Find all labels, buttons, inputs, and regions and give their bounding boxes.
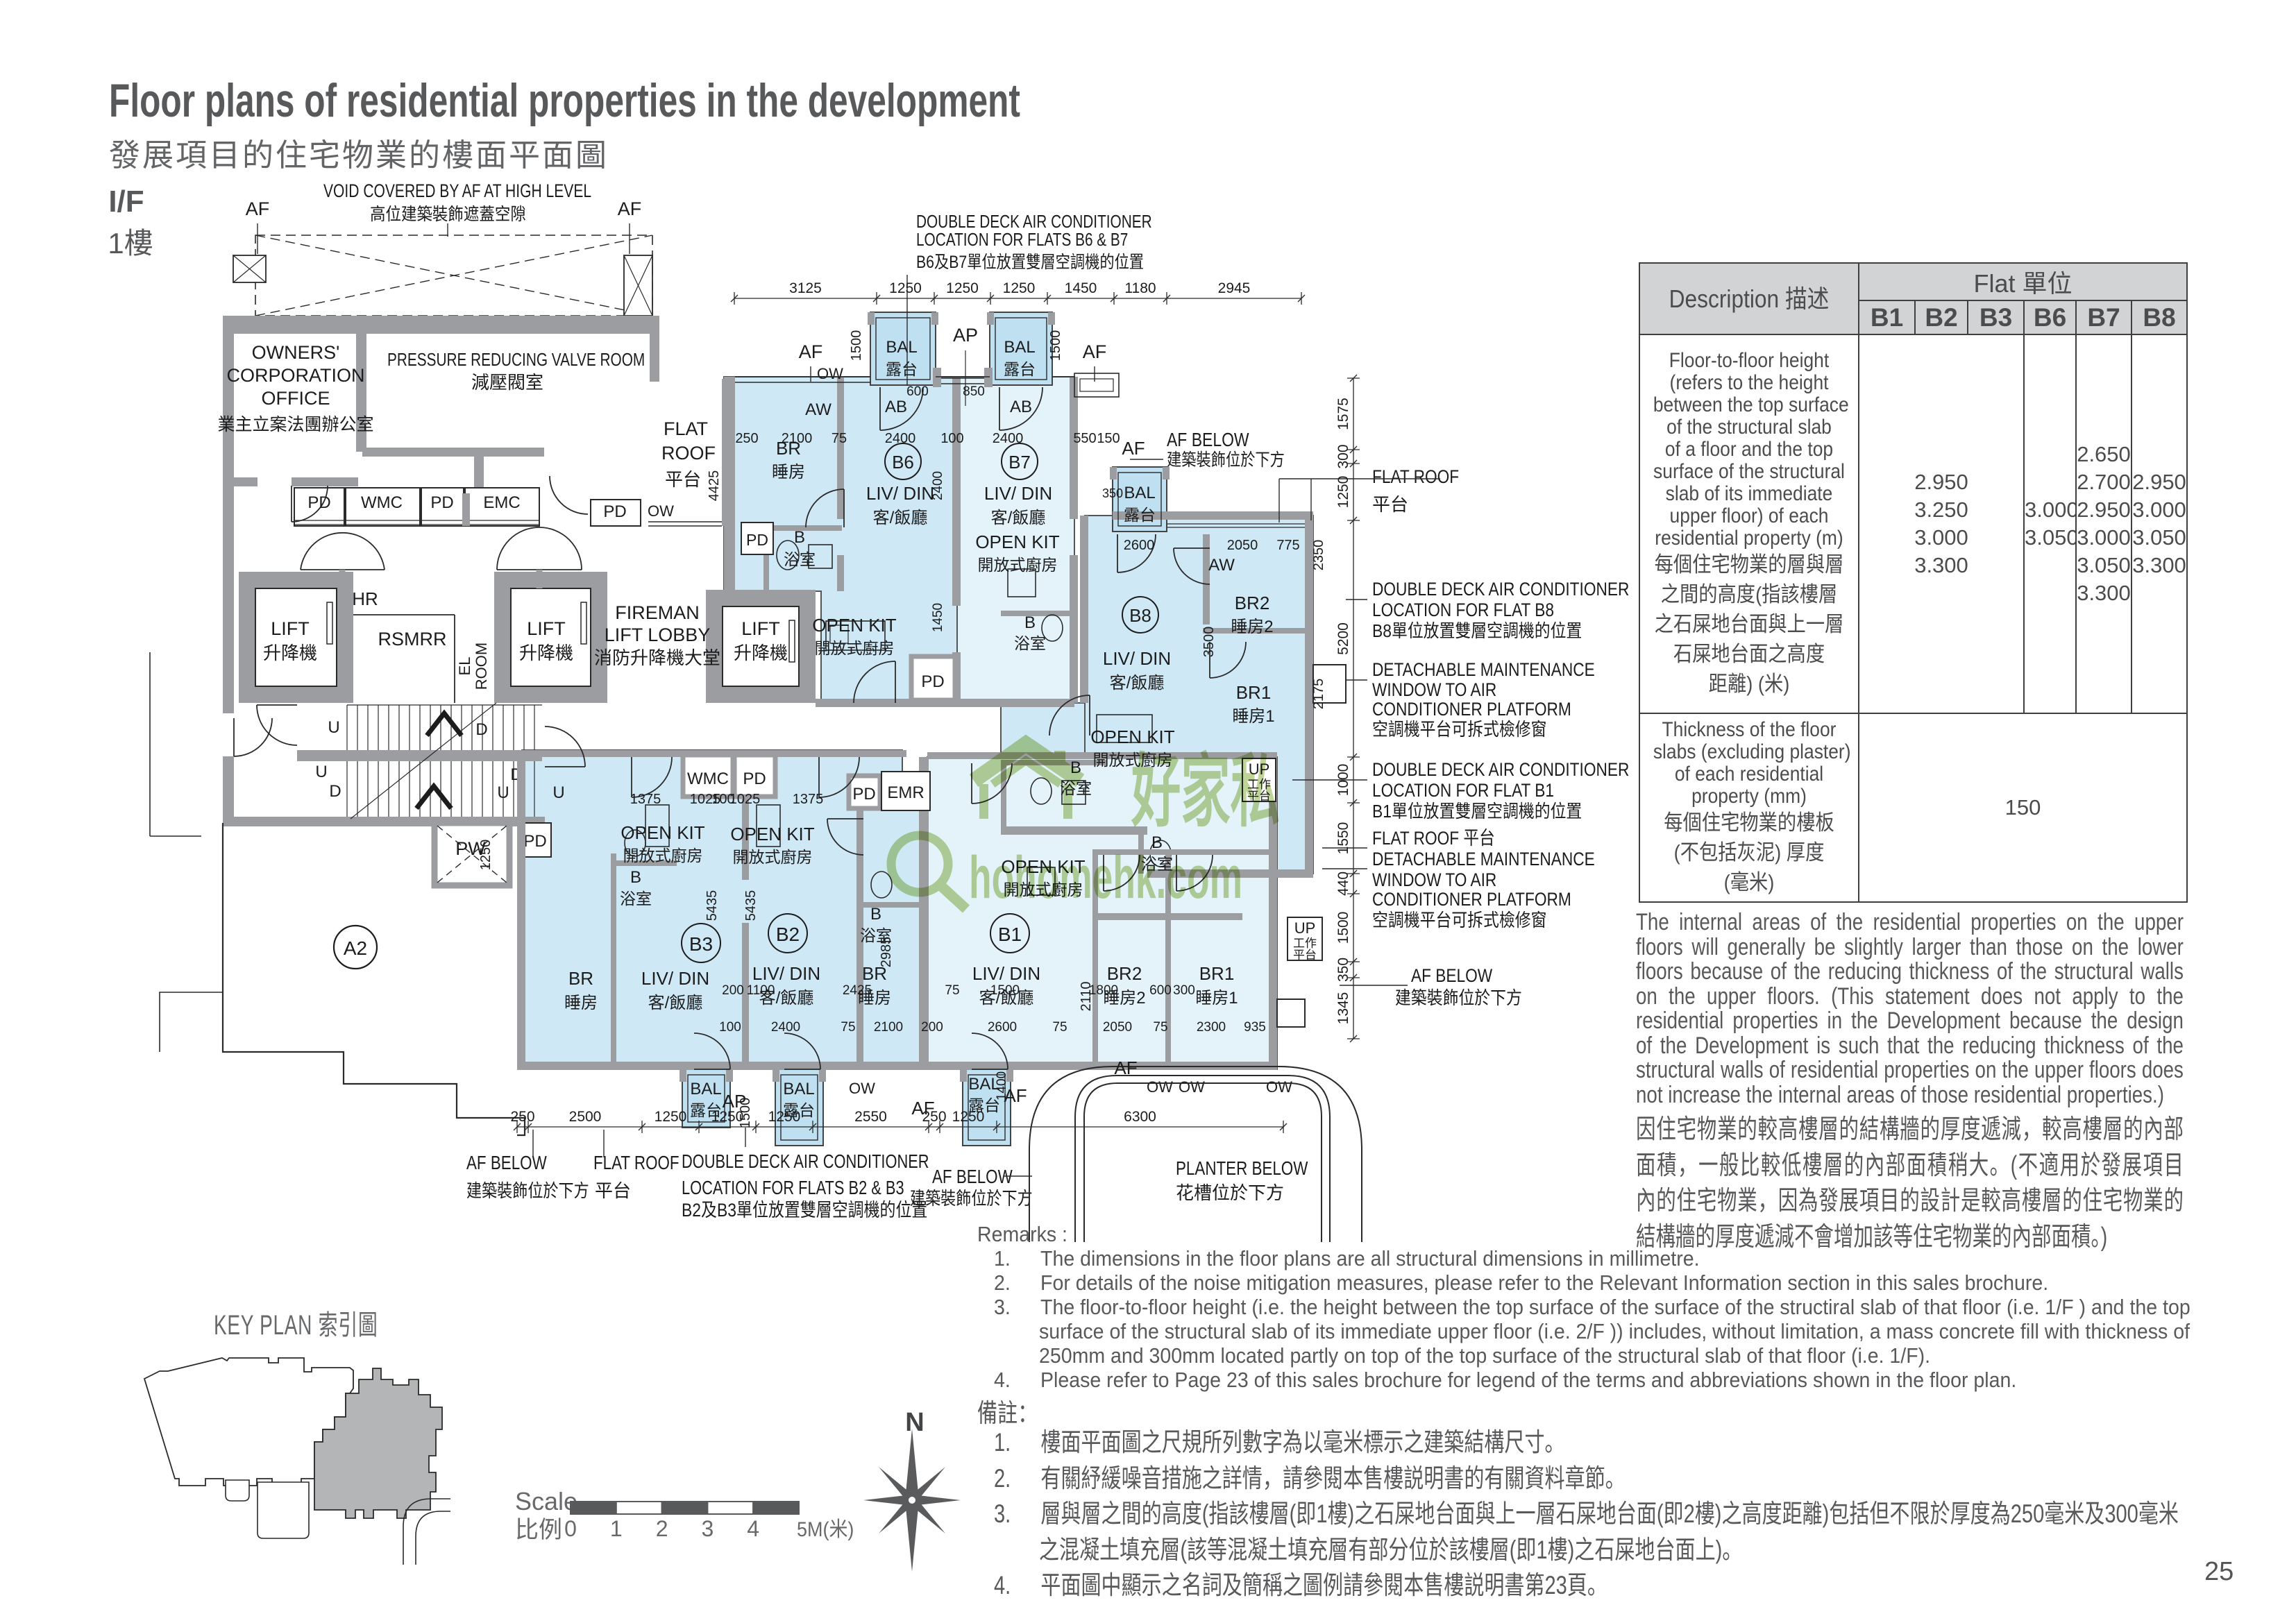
- svg-text:睡房: 睡房: [564, 994, 598, 1012]
- svg-text:1250: 1250: [768, 1109, 801, 1125]
- svg-text:Scale: Scale: [515, 1487, 577, 1515]
- svg-text:75: 75: [1052, 1020, 1067, 1035]
- svg-text:OW: OW: [849, 1080, 875, 1097]
- svg-text:PD: PD: [746, 531, 768, 549]
- svg-text:2985: 2985: [879, 937, 894, 968]
- svg-text:露台: 露台: [1124, 506, 1156, 524]
- svg-text:1375: 1375: [793, 792, 824, 807]
- svg-text:PD: PD: [430, 493, 453, 512]
- svg-text:1500: 1500: [738, 1098, 753, 1129]
- svg-text:OPEN KIT: OPEN KIT: [730, 824, 814, 844]
- svg-text:1100: 1100: [747, 983, 775, 998]
- svg-text:PD: PD: [307, 493, 330, 512]
- svg-text:OFFICE: OFFICE: [262, 388, 330, 409]
- svg-text:200: 200: [722, 983, 744, 998]
- svg-text:空調機平台可拆式檢修窗: 空調機平台可拆式檢修窗: [1372, 910, 1546, 931]
- svg-text:AB: AB: [885, 398, 907, 416]
- svg-text:BAL: BAL: [783, 1080, 814, 1098]
- svg-text:DOUBLE DECK AIR CONDITIONER: DOUBLE DECK AIR CONDITIONER: [1372, 579, 1629, 600]
- svg-text:1025: 1025: [729, 792, 761, 807]
- svg-text:D: D: [475, 720, 487, 739]
- svg-text:N: N: [905, 1408, 924, 1437]
- svg-text:1500: 1500: [1335, 912, 1351, 944]
- svg-text:DETACHABLE MAINTENANCE: DETACHABLE MAINTENANCE: [1372, 849, 1595, 869]
- svg-text:睡房2: 睡房2: [1231, 618, 1273, 636]
- svg-text:5200: 5200: [1335, 622, 1351, 655]
- svg-text:ROOM: ROOM: [473, 643, 490, 690]
- svg-text:露台: 露台: [1004, 360, 1036, 378]
- svg-text:AF: AF: [799, 341, 823, 362]
- svg-text:建築裝飾位於下方: 建築裝飾位於下方: [910, 1189, 1033, 1209]
- svg-text:5435: 5435: [743, 890, 759, 921]
- svg-text:好家私: 好家私: [1131, 747, 1280, 837]
- svg-text:平台: 平台: [1293, 949, 1317, 962]
- svg-text:客/飯廳: 客/飯廳: [873, 509, 928, 527]
- svg-text:4425: 4425: [707, 470, 722, 502]
- svg-text:1500: 1500: [849, 330, 864, 362]
- svg-text:開放式廚房: 開放式廚房: [978, 556, 1058, 574]
- svg-text:1345: 1345: [1335, 992, 1351, 1025]
- svg-text:2110: 2110: [1079, 981, 1094, 1011]
- svg-text:HR: HR: [352, 588, 378, 609]
- svg-text:3: 3: [702, 1516, 714, 1541]
- svg-text:1000: 1000: [1335, 764, 1351, 797]
- svg-text:建築裝飾位於下方: 建築裝飾位於下方: [1167, 450, 1285, 469]
- svg-text:WMC: WMC: [361, 493, 403, 512]
- svg-text:2050: 2050: [1227, 538, 1258, 553]
- svg-text:1500: 1500: [1048, 330, 1063, 362]
- svg-text:OW: OW: [1147, 1078, 1173, 1096]
- svg-text:B2: B2: [776, 924, 800, 945]
- svg-text:B8: B8: [1129, 605, 1151, 626]
- svg-text:2600: 2600: [988, 1020, 1017, 1035]
- svg-text:LIV/ DIN: LIV/ DIN: [641, 968, 709, 989]
- svg-text:AF: AF: [618, 198, 642, 219]
- svg-text:BR2: BR2: [1235, 593, 1270, 613]
- svg-text:U: U: [315, 763, 327, 781]
- svg-text:EL: EL: [456, 657, 473, 676]
- svg-text:PD: PD: [523, 832, 546, 851]
- svg-text:1180: 1180: [1124, 280, 1156, 296]
- svg-text:2050: 2050: [1103, 1020, 1132, 1035]
- svg-text:WMC: WMC: [687, 770, 729, 788]
- svg-text:2350: 2350: [1311, 540, 1326, 571]
- svg-text:LIFT LOBBY: LIFT LOBBY: [605, 624, 711, 645]
- svg-text:0: 0: [564, 1516, 577, 1541]
- svg-text:建築裝飾位於下方: 建築裝飾位於下方: [466, 1181, 589, 1201]
- svg-text:DOUBLE DECK AIR CONDITIONER: DOUBLE DECK AIR CONDITIONER: [682, 1150, 929, 1172]
- svg-text:3125: 3125: [789, 280, 822, 296]
- svg-text:2: 2: [656, 1516, 668, 1541]
- svg-text:1樓: 1樓: [108, 227, 153, 260]
- svg-text:LIV/ DIN: LIV/ DIN: [866, 483, 934, 504]
- svg-text:B: B: [794, 528, 805, 547]
- svg-text:U: U: [328, 718, 339, 737]
- svg-text:BR1: BR1: [1236, 682, 1272, 703]
- svg-text:75: 75: [832, 431, 847, 446]
- svg-text:250: 250: [510, 1109, 534, 1125]
- svg-text:升降機: 升降機: [519, 643, 573, 663]
- svg-text:B: B: [1024, 613, 1036, 632]
- svg-text:平台: 平台: [665, 469, 701, 490]
- svg-text:PRESSURE REDUCING VALVE ROOM: PRESSURE REDUCING VALVE ROOM: [387, 350, 645, 370]
- svg-text:睡房1: 睡房1: [1232, 707, 1274, 726]
- svg-text:DETACHABLE MAINTENANCE: DETACHABLE MAINTENANCE: [1372, 659, 1595, 680]
- svg-text:FLAT: FLAT: [664, 418, 708, 439]
- svg-text:1550: 1550: [1335, 822, 1351, 855]
- svg-text:B1: B1: [998, 924, 1022, 945]
- svg-text:600: 600: [906, 384, 929, 399]
- svg-text:1450: 1450: [1065, 280, 1097, 296]
- svg-text:LIFT: LIFT: [271, 618, 310, 639]
- svg-text:1375: 1375: [630, 792, 661, 807]
- svg-text:1250: 1250: [1335, 476, 1351, 509]
- svg-text:U: U: [552, 783, 564, 802]
- svg-text:850: 850: [963, 384, 985, 399]
- svg-text:浴室: 浴室: [784, 550, 816, 568]
- svg-text:FLAT ROOF 平台: FLAT ROOF 平台: [1372, 828, 1495, 849]
- svg-text:比例: 比例: [515, 1517, 562, 1543]
- svg-text:AF BELOW: AF BELOW: [466, 1153, 547, 1174]
- svg-text:AP: AP: [953, 325, 978, 346]
- svg-text:B2及B3單位放置雙層空調機的位置: B2及B3單位放置雙層空調機的位置: [682, 1200, 927, 1221]
- svg-text:2425: 2425: [843, 983, 872, 998]
- svg-text:AF: AF: [246, 198, 270, 219]
- svg-text:75: 75: [841, 1020, 855, 1035]
- svg-text:5M(米): 5M(米): [797, 1518, 854, 1542]
- svg-text:2550: 2550: [854, 1109, 887, 1125]
- svg-text:WINDOW TO AIR: WINDOW TO AIR: [1372, 869, 1496, 890]
- svg-text:OW: OW: [1266, 1078, 1292, 1096]
- svg-text:I/F: I/F: [108, 185, 144, 219]
- svg-text:開放式廚房: 開放式廚房: [815, 639, 895, 657]
- svg-text:RSMRR: RSMRR: [378, 629, 447, 649]
- svg-text:1250: 1250: [655, 1109, 687, 1125]
- svg-text:1450: 1450: [931, 603, 945, 632]
- svg-text:業主立案法團辦公室: 業主立案法團辦公室: [217, 415, 373, 434]
- svg-text:AF BELOW: AF BELOW: [1411, 965, 1493, 986]
- svg-text:LIV/ DIN: LIV/ DIN: [984, 483, 1052, 504]
- svg-text:OPEN KIT: OPEN KIT: [1090, 726, 1174, 747]
- svg-text:150: 150: [1097, 431, 1120, 446]
- svg-text:B1單位放置雙層空調機的位置: B1單位放置雙層空調機的位置: [1372, 801, 1582, 822]
- svg-text:2100: 2100: [782, 431, 813, 446]
- svg-text:100: 100: [940, 431, 963, 446]
- svg-text:PLANTER BELOW: PLANTER BELOW: [1176, 1158, 1308, 1180]
- svg-text:WINDOW TO AIR: WINDOW TO AIR: [1372, 679, 1496, 700]
- svg-text:2100: 2100: [874, 1020, 903, 1035]
- svg-text:DOUBLE DECK AIR CONDITIONER: DOUBLE DECK AIR CONDITIONER: [1372, 759, 1629, 780]
- svg-text:BR1: BR1: [1199, 963, 1235, 984]
- svg-text:VOID COVERED BY AF AT HIGH LEV: VOID COVERED BY AF AT HIGH LEVEL: [323, 181, 591, 202]
- svg-text:BAL: BAL: [1004, 338, 1035, 357]
- svg-text:升降機: 升降機: [263, 643, 317, 663]
- svg-text:AB: AB: [1010, 398, 1032, 416]
- svg-text:2400: 2400: [885, 431, 916, 446]
- svg-text:OPEN KIT: OPEN KIT: [621, 822, 704, 843]
- svg-text:LOCATION FOR FLATS B2 & B3: LOCATION FOR FLATS B2 & B3: [682, 1177, 904, 1198]
- svg-text:客/飯廳: 客/飯廳: [991, 509, 1046, 527]
- svg-text:露台: 露台: [886, 360, 918, 378]
- svg-text:B3: B3: [689, 933, 713, 955]
- svg-text:OW: OW: [648, 502, 674, 520]
- svg-text:LIFT: LIFT: [527, 618, 566, 639]
- svg-text:LIV/ DIN: LIV/ DIN: [972, 963, 1040, 984]
- svg-text:3500: 3500: [1201, 627, 1217, 658]
- svg-text:BAL: BAL: [690, 1080, 721, 1098]
- svg-text:OW: OW: [1179, 1078, 1205, 1096]
- svg-text:B7: B7: [1008, 452, 1031, 473]
- svg-text:350: 350: [1102, 486, 1123, 500]
- svg-text:升降機: 升降機: [734, 643, 788, 663]
- svg-text:平台: 平台: [595, 1180, 631, 1201]
- svg-text:AW: AW: [805, 400, 832, 419]
- svg-text:2175: 2175: [1311, 679, 1326, 710]
- svg-text:OPEN KIT: OPEN KIT: [975, 532, 1059, 552]
- svg-text:2400: 2400: [771, 1020, 800, 1035]
- svg-text:BR: BR: [568, 968, 593, 989]
- svg-text:UP: UP: [1294, 919, 1316, 937]
- svg-text:AF: AF: [1114, 1057, 1137, 1078]
- svg-text:200: 200: [921, 1020, 943, 1035]
- svg-text:U: U: [497, 783, 509, 802]
- svg-text:2600: 2600: [1124, 538, 1155, 553]
- svg-text:PD: PD: [921, 672, 944, 691]
- svg-text:B: B: [870, 905, 881, 924]
- svg-text:B6: B6: [892, 452, 914, 473]
- svg-text:OWNERS': OWNERS': [252, 342, 340, 363]
- svg-text:LOCATION FOR FLAT B1: LOCATION FOR FLAT B1: [1372, 780, 1554, 801]
- svg-text:BAL: BAL: [886, 338, 917, 357]
- svg-text:1250: 1250: [478, 840, 493, 871]
- svg-text:FIREMAN: FIREMAN: [615, 602, 700, 623]
- svg-text:2400: 2400: [931, 471, 945, 500]
- svg-text:2400: 2400: [993, 431, 1024, 446]
- svg-text:OW: OW: [817, 365, 843, 382]
- svg-text:2300: 2300: [1197, 1020, 1226, 1035]
- svg-text:消防升降機大堂: 消防升降機大堂: [594, 647, 720, 668]
- svg-text:D: D: [329, 782, 341, 801]
- svg-text:CORPORATION: CORPORATION: [226, 365, 364, 386]
- svg-text:PD: PD: [603, 502, 626, 521]
- svg-text:A2: A2: [344, 937, 367, 959]
- svg-text:建築裝飾位於下方: 建築裝飾位於下方: [1395, 988, 1522, 1009]
- svg-text:AW: AW: [1208, 556, 1235, 575]
- svg-text:ROOF: ROOF: [661, 443, 716, 464]
- svg-text:EMR: EMR: [887, 783, 924, 802]
- svg-text:4: 4: [747, 1516, 759, 1541]
- svg-text:1575: 1575: [1335, 398, 1351, 430]
- svg-text:FLAT ROOF: FLAT ROOF: [593, 1153, 679, 1174]
- svg-text:600: 600: [1149, 983, 1172, 998]
- svg-text:1500: 1500: [990, 983, 1020, 998]
- svg-text:PD: PD: [852, 785, 875, 804]
- svg-text:1250: 1250: [952, 1109, 985, 1125]
- svg-text:1: 1: [610, 1516, 623, 1541]
- svg-text:100: 100: [719, 1020, 741, 1035]
- svg-text:OPEN KIT: OPEN KIT: [812, 615, 896, 636]
- svg-text:440: 440: [1335, 872, 1351, 896]
- svg-text:1250: 1250: [889, 280, 922, 296]
- svg-text:開放式廚房: 開放式廚房: [623, 847, 703, 865]
- svg-text:B8單位放置雙層空調機的位置: B8單位放置雙層空調機的位置: [1372, 621, 1582, 642]
- svg-text:2500: 2500: [569, 1109, 602, 1125]
- svg-text:LIV/ DIN: LIV/ DIN: [752, 963, 820, 984]
- svg-text:75: 75: [1153, 1020, 1167, 1035]
- svg-text:B: B: [630, 868, 641, 887]
- svg-text:浴室: 浴室: [1014, 634, 1046, 652]
- svg-text:350: 350: [1335, 958, 1351, 982]
- svg-text:LIFT: LIFT: [741, 618, 780, 639]
- svg-text:75: 75: [945, 983, 959, 998]
- svg-text:BAL: BAL: [1124, 484, 1155, 502]
- svg-text:B6及B7單位放置雙層空調機的位置: B6及B7單位放置雙層空調機的位置: [916, 252, 1144, 271]
- svg-text:AF: AF: [1122, 438, 1145, 459]
- svg-text:平台: 平台: [1372, 494, 1408, 515]
- svg-text:1250: 1250: [1003, 280, 1036, 296]
- svg-text:高位建築裝飾遮蓋空隙: 高位建築裝飾遮蓋空隙: [370, 205, 526, 224]
- svg-text:花槽位於下方: 花槽位於下方: [1176, 1182, 1284, 1203]
- svg-text:1400: 1400: [995, 1071, 1009, 1101]
- svg-text:FLAT ROOF: FLAT ROOF: [1372, 466, 1459, 487]
- svg-text:睡房1: 睡房1: [1195, 989, 1238, 1008]
- svg-text:AF BELOW: AF BELOW: [1167, 430, 1249, 451]
- svg-text:AF: AF: [1083, 341, 1107, 362]
- svg-text:睡房: 睡房: [772, 463, 805, 482]
- svg-text:300: 300: [1173, 983, 1195, 998]
- svg-text:CONDITIONER PLATFORM: CONDITIONER PLATFORM: [1372, 889, 1571, 910]
- svg-text:LIV/ DIN: LIV/ DIN: [1103, 648, 1171, 669]
- svg-text:客/飯廳: 客/飯廳: [648, 994, 703, 1012]
- svg-text:250: 250: [735, 431, 758, 446]
- svg-text:空調機平台可拆式檢修窗: 空調機平台可拆式檢修窗: [1372, 720, 1546, 740]
- svg-text:EMC: EMC: [483, 493, 520, 512]
- svg-text:LOCATION FOR FLAT B8: LOCATION FOR FLAT B8: [1372, 600, 1554, 620]
- svg-text:PD: PD: [743, 770, 766, 788]
- svg-text:hohomehk.com: hohomehk.com: [969, 844, 1242, 911]
- svg-text:AF BELOW: AF BELOW: [932, 1166, 1013, 1188]
- svg-text:6300: 6300: [1124, 1109, 1156, 1125]
- svg-text:減壓閥室: 減壓閥室: [471, 372, 543, 393]
- svg-text:5435: 5435: [704, 890, 720, 921]
- svg-text:250: 250: [922, 1109, 946, 1125]
- svg-text:客/飯廳: 客/飯廳: [1110, 674, 1165, 692]
- svg-text:LOCATION FOR FLATS B6 & B7: LOCATION FOR FLATS B6 & B7: [916, 230, 1128, 250]
- svg-text:1250: 1250: [946, 280, 979, 296]
- svg-text:550: 550: [1073, 431, 1096, 446]
- svg-text:DOUBLE DECK AIR CONDITIONER: DOUBLE DECK AIR CONDITIONER: [916, 212, 1152, 232]
- svg-text:CONDITIONER PLATFORM: CONDITIONER PLATFORM: [1372, 699, 1571, 720]
- svg-text:BR2: BR2: [1107, 963, 1142, 984]
- svg-text:開放式廚房: 開放式廚房: [733, 848, 813, 866]
- svg-text:300: 300: [1335, 444, 1351, 468]
- svg-text:935: 935: [1244, 1020, 1266, 1035]
- svg-text:2945: 2945: [1218, 280, 1251, 296]
- svg-text:775: 775: [1276, 538, 1299, 553]
- svg-text:浴室: 浴室: [620, 890, 652, 908]
